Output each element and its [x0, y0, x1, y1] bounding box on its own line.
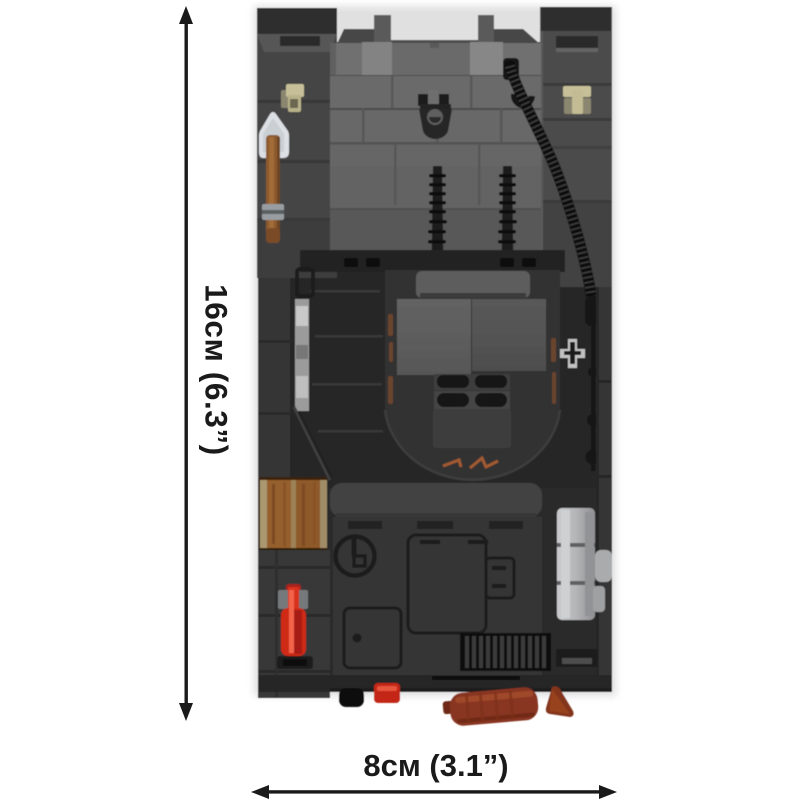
svg-text:8см (3.1”): 8см (3.1”) — [363, 748, 508, 783]
svg-text:16см (6.3”): 16см (6.3”) — [199, 284, 235, 456]
